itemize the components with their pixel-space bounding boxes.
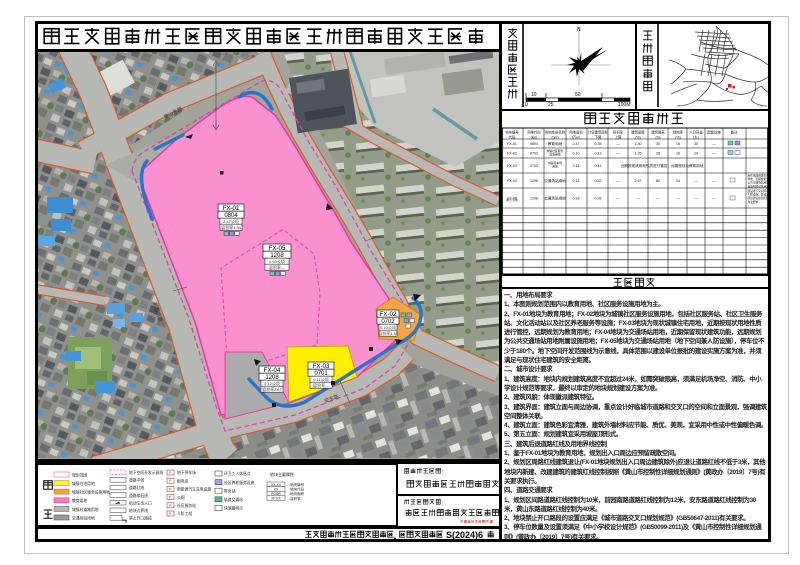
svg-text::: : bbox=[442, 501, 444, 507]
svg-text:容积率—: 容积率— bbox=[313, 382, 329, 388]
svg-text:30: 30 bbox=[656, 142, 660, 146]
svg-text:—: — bbox=[712, 196, 716, 200]
svg-text::: : bbox=[442, 470, 444, 476]
svg-text:FX-02: FX-02 bbox=[507, 151, 517, 155]
svg-text:—: — bbox=[712, 179, 716, 183]
svg-text:场地、近期规划为: 场地、近期规划为 bbox=[748, 177, 769, 181]
svg-text:0804: 0804 bbox=[530, 142, 538, 146]
svg-text:0.93公顷: 0.93公顷 bbox=[269, 258, 285, 264]
svg-text:社区养老服务设施: 社区养老服务设施 bbox=[224, 480, 255, 485]
svg-text:P: P bbox=[169, 479, 171, 483]
svg-text:配套设施: 配套设施 bbox=[707, 130, 721, 135]
svg-text:(km): (km) bbox=[531, 136, 538, 140]
svg-text:0.35: 0.35 bbox=[595, 142, 602, 146]
svg-text:容积率: 容积率 bbox=[613, 130, 624, 135]
svg-text:容积率2.67: 容积率2.67 bbox=[262, 386, 283, 392]
svg-text:居远建设施及配套: 居远建设施及配套 bbox=[748, 196, 769, 200]
svg-text:P: P bbox=[169, 512, 171, 516]
svg-text:0702: 0702 bbox=[530, 151, 538, 155]
svg-text:P: P bbox=[169, 487, 171, 491]
svg-text:建筑密度: 建筑密度 bbox=[631, 130, 645, 135]
svg-text:FX-03: FX-03 bbox=[313, 363, 330, 370]
svg-text:0.93: 0.93 bbox=[573, 196, 580, 200]
svg-text:1208: 1208 bbox=[270, 253, 284, 259]
svg-text:0.10: 0.10 bbox=[573, 151, 580, 155]
svg-text:1.30: 1.30 bbox=[635, 142, 642, 146]
svg-text:0.12公顷: 0.12公顷 bbox=[264, 380, 280, 386]
svg-text:FX-01: FX-01 bbox=[223, 205, 240, 212]
svg-text:轨道交通站: 轨道交通站 bbox=[224, 497, 243, 502]
svg-text:24: 24 bbox=[676, 179, 680, 183]
svg-text:20: 20 bbox=[694, 151, 698, 155]
svg-text:0.93: 0.93 bbox=[595, 196, 602, 200]
svg-text:10: 10 bbox=[531, 92, 537, 98]
svg-text:—: — bbox=[656, 196, 660, 200]
svg-text:0701: 0701 bbox=[314, 371, 328, 377]
svg-text:2.47公顷: 2.47公顷 bbox=[223, 218, 239, 224]
svg-text:道路中线: 道路中线 bbox=[129, 478, 144, 483]
svg-text:0.11: 0.11 bbox=[573, 164, 580, 168]
svg-text:容积率1.30: 容积率1.30 bbox=[221, 224, 242, 230]
svg-text:—: — bbox=[676, 196, 680, 200]
svg-text:0.41: 0.41 bbox=[595, 164, 602, 168]
svg-text:P: P bbox=[169, 471, 171, 475]
svg-text:FX-05: FX-05 bbox=[269, 245, 286, 252]
svg-text:16: 16 bbox=[676, 151, 680, 155]
svg-text:城镇住宅用地: 城镇住宅用地 bbox=[72, 481, 95, 486]
svg-text:教育用地: 教育用地 bbox=[72, 498, 87, 503]
svg-text:1208: 1208 bbox=[265, 375, 279, 381]
svg-text:机动车出入口: 机动车出入口 bbox=[129, 500, 152, 505]
svg-text:建筑限高: 建筑限高 bbox=[651, 130, 665, 135]
svg-text:(%): (%) bbox=[635, 136, 640, 140]
svg-text:—: — bbox=[616, 179, 620, 183]
svg-text:地块主要属性: 地块主要属性 bbox=[270, 471, 294, 477]
svg-text:公共交通场站用地: 公共交通场站用地 bbox=[748, 181, 769, 185]
svg-text:为主要求: 为主要求 bbox=[748, 200, 759, 204]
svg-text:-地块编号: -地块编号 bbox=[289, 482, 305, 487]
svg-text:FX-02: FX-02 bbox=[380, 311, 397, 318]
svg-text:0.13: 0.13 bbox=[595, 151, 602, 155]
svg-text:教育用地: 教育用地 bbox=[548, 141, 563, 146]
svg-text:2.67: 2.67 bbox=[635, 179, 642, 183]
svg-text:FX-01: FX-01 bbox=[507, 142, 517, 146]
svg-text:—: — bbox=[616, 151, 620, 155]
svg-text:FX-03: FX-03 bbox=[507, 164, 517, 168]
svg-text:人防设施、建设宜: 人防设施、建设宜 bbox=[748, 193, 769, 197]
svg-text:用地性质名称: 用地性质名称 bbox=[545, 130, 566, 135]
svg-text:用作地面换乘停车: 用作地面换乘停车 bbox=[748, 174, 769, 178]
svg-text:规划范围: 规划范围 bbox=[72, 472, 87, 477]
svg-text:地块边界线: 地块边界线 bbox=[129, 508, 148, 513]
svg-text:交通场站用地: 交通场站用地 bbox=[544, 178, 566, 183]
svg-text:—: — bbox=[694, 179, 698, 183]
svg-text:R=XX: R=XX bbox=[272, 497, 282, 501]
svg-text:-容积率: -容积率 bbox=[289, 496, 301, 501]
svg-text:FX-04: FX-04 bbox=[264, 367, 281, 374]
svg-text:-地块面积: -地块面积 bbox=[289, 491, 305, 496]
svg-text:计容建筑面积: 计容建筑面积 bbox=[588, 130, 609, 135]
svg-text:(人): (人) bbox=[693, 135, 699, 140]
svg-text:—: — bbox=[616, 196, 620, 200]
svg-text:0.10公顷: 0.10公顷 bbox=[380, 324, 396, 330]
svg-text:兼容附属设施用地: 兼容附属设施用地 bbox=[748, 184, 769, 188]
svg-text:新能源汽车充电设施: 新能源汽车充电设施 bbox=[177, 487, 211, 492]
svg-text:配电房: 配电房 bbox=[177, 478, 189, 483]
svg-text:下限: 下限 bbox=[595, 135, 602, 140]
svg-text:城镇社区服务设施用地: 城镇社区服务设施用地 bbox=[72, 490, 110, 495]
svg-text:公厕: 公厕 bbox=[177, 495, 185, 500]
svg-text:FGSR: FGSR bbox=[271, 492, 281, 496]
svg-text:交通场站用地: 交通场站用地 bbox=[544, 195, 566, 200]
svg-text:(地下空间): (地下空间) bbox=[506, 198, 518, 202]
svg-text:100M: 100M bbox=[618, 102, 631, 107]
svg-text:城镇村道路用地: 城镇村道路用地 bbox=[72, 507, 99, 512]
svg-text:25: 25 bbox=[548, 102, 554, 107]
svg-text:16: 16 bbox=[676, 142, 680, 146]
svg-text:代码: 代码 bbox=[509, 135, 516, 140]
svg-text:—: — bbox=[616, 142, 620, 146]
svg-text:(hm): (hm) bbox=[552, 136, 559, 140]
svg-text:0703: 0703 bbox=[530, 164, 538, 168]
svg-text:—: — bbox=[712, 151, 716, 155]
svg-text:绿地率: 绿地率 bbox=[673, 130, 684, 135]
svg-text:FX-04: FX-04 bbox=[507, 179, 517, 183]
svg-text:—: — bbox=[694, 196, 698, 200]
svg-text:XX: XX bbox=[274, 487, 279, 491]
svg-text:建设地下空间停车: 建设地下空间停车 bbox=[748, 189, 769, 193]
svg-text:设施用地: 设施用地 bbox=[549, 153, 560, 157]
svg-text:28: 28 bbox=[656, 151, 660, 155]
svg-text:用地面积: 用地面积 bbox=[569, 130, 583, 135]
svg-text:50: 50 bbox=[575, 92, 581, 98]
svg-text:道路缘石线: 道路缘石线 bbox=[129, 493, 148, 498]
svg-text:0: 0 bbox=[525, 102, 528, 107]
svg-text:XX-XX: XX-XX bbox=[271, 483, 282, 487]
svg-text:上限: 上限 bbox=[615, 135, 622, 140]
svg-text:—: — bbox=[712, 142, 716, 146]
svg-text:1.35: 1.35 bbox=[635, 151, 642, 155]
svg-text:备注: 备注 bbox=[731, 130, 738, 135]
svg-text:0.12: 0.12 bbox=[573, 179, 580, 183]
svg-text:社区服务站: 社区服务站 bbox=[177, 503, 196, 508]
svg-text:P: P bbox=[169, 496, 171, 500]
svg-text:S(2024)6: S(2024)6 bbox=[446, 530, 483, 539]
svg-text:人防工程: 人防工程 bbox=[177, 511, 192, 516]
svg-text:道路红线: 道路红线 bbox=[129, 485, 144, 490]
svg-text:35: 35 bbox=[694, 142, 698, 146]
svg-text:交通场站用地: 交通场站用地 bbox=[72, 515, 95, 520]
svg-text:禁止开口路段: 禁止开口路段 bbox=[129, 516, 152, 521]
svg-text:近期按现状用地性质进行管控，远期规划为教育用地: 近期按现状用地性质进行管控，远期规划为教育用地 bbox=[621, 163, 704, 168]
svg-text:(%): (%) bbox=[675, 136, 680, 140]
svg-text:地块编号: 地块编号 bbox=[505, 130, 519, 135]
svg-text:环卫工人休息点: 环卫工人休息点 bbox=[224, 471, 251, 476]
svg-text:P: P bbox=[169, 504, 171, 508]
svg-text:地下空间开发示意线: 地下空间开发示意线 bbox=[129, 470, 163, 475]
svg-text:2.47: 2.47 bbox=[573, 142, 580, 146]
svg-text:警务站: 警务站 bbox=[224, 488, 236, 493]
svg-text:人口容量: 人口容量 bbox=[689, 130, 703, 135]
svg-text:用地: 用地 bbox=[552, 165, 558, 169]
svg-text:—: — bbox=[636, 196, 640, 200]
svg-text:80: 80 bbox=[656, 179, 660, 183]
svg-text:1208: 1208 bbox=[530, 179, 538, 183]
svg-text:容积率1.35: 容积率1.35 bbox=[378, 330, 399, 336]
svg-text:0.32: 0.32 bbox=[595, 179, 602, 183]
svg-text:N: N bbox=[577, 27, 581, 33]
svg-text:用地代码: 用地代码 bbox=[527, 130, 541, 135]
svg-text:0804: 0804 bbox=[224, 213, 238, 219]
svg-text:1208: 1208 bbox=[530, 196, 538, 200]
svg-text:(万m): (万m) bbox=[572, 136, 580, 140]
svg-text:0702: 0702 bbox=[381, 319, 395, 325]
svg-text:容积率—: 容积率— bbox=[269, 264, 285, 270]
svg-text:(m): (m) bbox=[655, 136, 660, 140]
svg-text:-地块代码: -地块代码 bbox=[289, 487, 305, 492]
svg-text:地下停车场: 地下停车场 bbox=[177, 470, 196, 475]
svg-text:快速路线点: 快速路线点 bbox=[224, 506, 243, 511]
svg-text:0.11公顷: 0.11公顷 bbox=[313, 376, 329, 382]
